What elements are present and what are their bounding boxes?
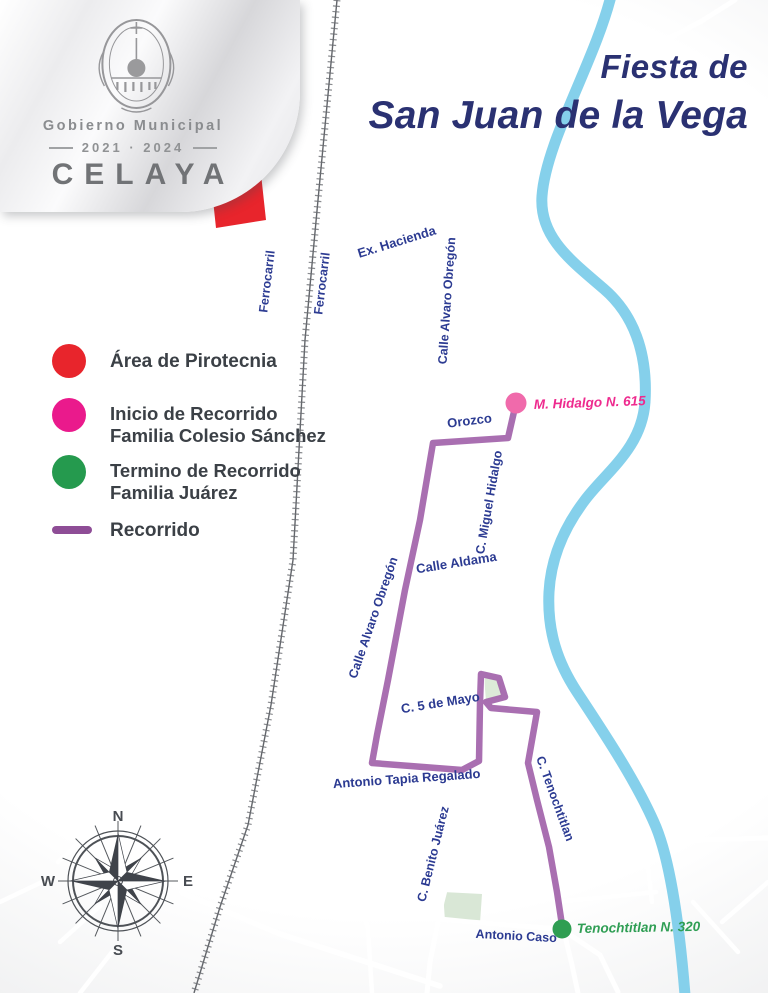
legend-label: Recorrido [110,518,200,542]
street-label-ferrocarril-east: Ferrocarril [311,252,333,316]
street [656,0,735,45]
street [650,329,768,334]
red-circle-icon [52,344,86,378]
street [662,684,676,740]
legend-label-line1: Inicio de Recorrido [110,403,326,425]
street-label-alvaro-obregon-north: Calle Alvaro Obregón [436,237,459,365]
celaya-coat-of-arms-icon [51,12,221,116]
compass-east-label: E [183,873,193,890]
street [320,866,420,880]
compass-west-label: W [41,873,56,890]
legend-item-inicio: Inicio de Recorrido Familia Colesio Sánc… [52,398,326,447]
street [60,906,100,942]
compass-south-label: S [113,942,123,959]
legend-label-line2: Familia Juárez [110,482,301,504]
street-labels: Ferrocarril Ferrocarril Ex. Hacienda Cal… [256,222,577,945]
route-line [372,403,562,925]
logo-government-text: Gobierno Municipal [0,118,266,134]
logo-period-text: 2021 · 2024 [82,140,184,155]
street [645,254,768,264]
street-label-ferrocarril-west: Ferrocarril [256,250,278,314]
street [570,674,768,697]
park-areas [443,677,502,923]
end-point-label: Tenochtitlan N. 320 [577,919,701,936]
logo-period-row: 2021 · 2024 [0,140,266,155]
legend-label: Área de Pirotecnia [110,344,277,373]
street [80,952,112,993]
route-line-icon [52,526,92,534]
title-line-2: San Juan de la Vega [369,96,749,135]
legend-label: Inicio de Recorrido Familia Colesio Sánc… [110,398,326,447]
legend-label-line1: Termino de Recorrido [110,460,301,482]
street [355,867,372,993]
street [395,494,492,507]
street [710,594,768,636]
start-point-label: M. Hidalgo N. 615 [534,393,647,412]
street [702,684,768,770]
start-marker [506,393,527,414]
street [585,458,593,572]
legend-label-line2: Familia Colesio Sánchez [110,425,326,447]
street-benito-juarez [427,772,478,993]
street [0,882,42,902]
street [0,645,130,740]
street [603,610,768,662]
street [722,882,768,922]
title-line-1: Fiesta de [369,50,749,83]
street [730,450,735,522]
street [38,449,42,503]
pink-circle-icon [52,398,86,432]
poster-title: Fiesta de San Juan de la Vega [369,50,749,135]
legend-item-pirotecnia: Área de Pirotecnia [52,344,277,378]
compass-north-label: N [113,808,124,825]
street [600,838,768,843]
legend-item-termino: Termino de Recorrido Familia Juárez [52,455,301,504]
street [578,372,662,700]
green-circle-icon [52,455,86,489]
street-label-antonio-caso: Antonio Caso [475,927,557,945]
dash-ornament-right [193,147,217,149]
logo-city-name: CELAYA [10,158,266,192]
legend-item-recorrido: Recorrido [52,518,200,542]
street [700,453,706,527]
legend-label: Termino de Recorrido Familia Juárez [110,455,301,504]
municipal-logo-card: Gobierno Municipal 2021 · 2024 CELAYA [0,0,300,212]
street [558,892,656,902]
festival-route-map-poster: Ferrocarril Ferrocarril Ex. Hacienda Cal… [0,0,768,993]
dash-ornament-left [49,147,73,149]
street-label-miguel-hidalgo: C. Miguel Hidalgo [473,449,505,555]
street-label-orozco: Orozco [446,410,492,430]
